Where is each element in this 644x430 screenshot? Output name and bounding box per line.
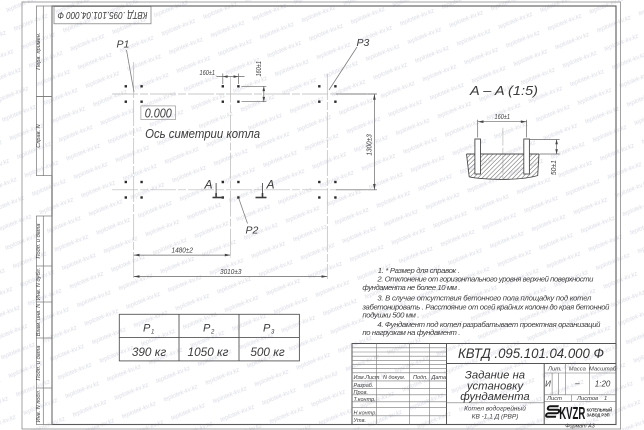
svg-text:3010±3: 3010±3 xyxy=(220,267,242,276)
svg-text:160±1: 160±1 xyxy=(200,68,216,77)
svg-text:Н.контр.: Н.контр. xyxy=(354,410,377,416)
svg-text:N докум.: N докум. xyxy=(383,375,405,381)
svg-text:A – A (1:5): A – A (1:5) xyxy=(469,83,538,98)
svg-text:A: A xyxy=(266,178,275,192)
svg-text:Масса: Масса xyxy=(569,367,587,373)
svg-text:P2: P2 xyxy=(246,225,259,237)
svg-text:A: A xyxy=(204,178,213,192)
svg-text:Взам. инв. N: Взам. инв. N xyxy=(36,303,42,337)
svg-text:P: P xyxy=(203,323,211,335)
svg-text:Лист: Лист xyxy=(546,396,562,402)
svg-text:P3: P3 xyxy=(357,37,370,49)
svg-text:KVZR: KVZR xyxy=(559,403,585,423)
svg-text:Инв. N дубл.: Инв. N дубл. xyxy=(36,268,42,300)
svg-text:Ось симетрии котла: Ось симетрии котла xyxy=(145,127,260,141)
svg-text:Подп. и дата: Подп. и дата xyxy=(36,223,42,258)
svg-text:Подп.: Подп. xyxy=(413,375,428,381)
svg-text:P: P xyxy=(263,323,271,335)
svg-text:КВТД .095.101.04.000 Ф: КВТД .095.101.04.000 Ф xyxy=(57,9,147,20)
svg-text:1. * Размер для справок .: 1. * Размер для справок . xyxy=(378,266,460,275)
svg-text:Лит.: Лит. xyxy=(547,367,562,373)
svg-text:P1: P1 xyxy=(117,39,130,51)
svg-text:Масштаб: Масштаб xyxy=(589,367,617,373)
svg-text:1:20: 1:20 xyxy=(595,380,611,389)
svg-text:1480±2: 1480±2 xyxy=(172,246,194,255)
svg-text:подушки 500 мм .: подушки 500 мм . xyxy=(362,311,419,320)
svg-text:Справ. N: Справ. N xyxy=(36,123,42,147)
svg-text:Формат А3: Формат А3 xyxy=(565,424,595,430)
svg-text:фундамента: фундамента xyxy=(460,391,529,403)
svg-text:1050 кг: 1050 кг xyxy=(188,345,229,359)
svg-text:1300±3: 1300±3 xyxy=(365,134,374,156)
svg-text:2: 2 xyxy=(210,330,215,336)
svg-text:50±1: 50±1 xyxy=(549,160,558,175)
svg-text:Подп. и дата: Подп. и дата xyxy=(36,345,42,380)
svg-text:Перв. примен.: Перв. примен. xyxy=(36,33,42,70)
svg-text:ЗАВОД РЭП: ЗАВОД РЭП xyxy=(587,413,610,418)
svg-text:390 кг: 390 кг xyxy=(132,345,167,359)
svg-text:3. В случае отсутствия бетонно: 3. В случае отсутствия бетонного пола пл… xyxy=(377,294,592,303)
svg-text:КВТД .095.101.04.000 Ф: КВТД .095.101.04.000 Ф xyxy=(458,345,604,361)
svg-text:Т.контр.: Т.контр. xyxy=(354,397,376,403)
svg-text:P: P xyxy=(143,323,151,335)
svg-text:Утв.: Утв. xyxy=(353,418,367,424)
svg-text:И: И xyxy=(545,380,551,389)
svg-text:Котел водогрейный: Котел водогрейный xyxy=(464,405,526,413)
svg-text:Изм.Лист: Изм.Лист xyxy=(354,375,380,381)
svg-text:Пров.: Пров. xyxy=(354,390,369,396)
svg-text:Инв. N подл.: Инв. N подл. xyxy=(36,390,42,423)
svg-text:160±1: 160±1 xyxy=(254,61,263,77)
svg-text:КОТЕЛЬНЫЙ: КОТЕЛЬНЫЙ xyxy=(587,405,613,412)
svg-text:КВ -1,1 Д (РВР): КВ -1,1 Д (РВР) xyxy=(472,414,519,421)
svg-text:160±1: 160±1 xyxy=(495,112,511,121)
svg-text:фундамента не более 10 мм .: фундамента не более 10 мм . xyxy=(362,283,460,292)
svg-text:500 кг: 500 кг xyxy=(250,345,285,359)
svg-text:Дата: Дата xyxy=(431,375,447,381)
svg-text:0.000: 0.000 xyxy=(145,107,172,121)
svg-text:1: 1 xyxy=(151,330,154,336)
svg-text:–: – xyxy=(574,379,580,388)
svg-text:по нагрузкам на фундамент .: по нагрузкам на фундамент . xyxy=(362,328,460,337)
svg-text:1: 1 xyxy=(604,396,607,402)
svg-text:Листов: Листов xyxy=(576,396,598,402)
svg-text:Разраб.: Разраб. xyxy=(354,383,374,389)
